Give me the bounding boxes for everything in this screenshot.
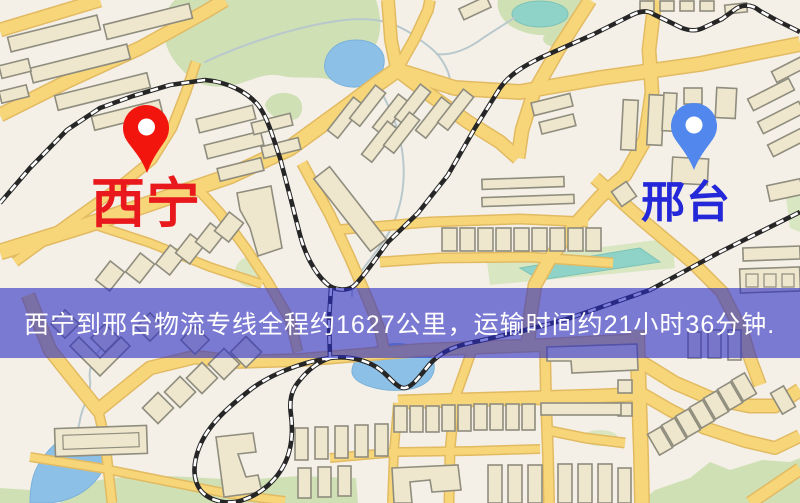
map-graphics	[0, 0, 800, 503]
route-info-text: 西宁到邢台物流专线全程约1627公里，运输时间约21小时36分钟.	[0, 305, 775, 341]
map-canvas: 西宁 邢台 西宁到邢台物流专线全程约1627公里，运输时间约21小时36分钟.	[0, 0, 800, 503]
destination-city-label: 邢台	[641, 181, 731, 225]
route-info-banner: 西宁到邢台物流专线全程约1627公里，运输时间约21小时36分钟.	[0, 288, 800, 358]
origin-city-label: 西宁	[91, 177, 201, 231]
